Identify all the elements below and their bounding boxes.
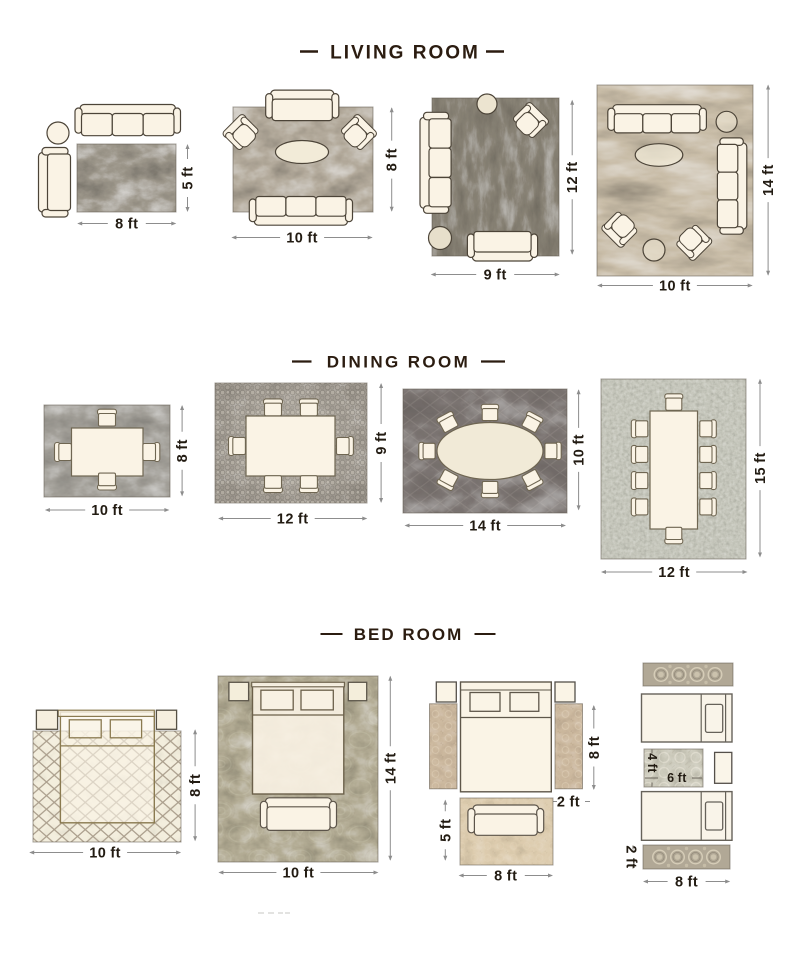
svg-text:14ft: 14ft (469, 519, 501, 535)
svg-text:12ft: 12ft (658, 565, 690, 581)
svg-text:10ft: 10ft (286, 231, 318, 247)
svg-text:8ft: 8ft (188, 774, 204, 797)
svg-text:9ft: 9ft (374, 431, 390, 454)
svg-text:10ft: 10ft (659, 279, 691, 295)
svg-text:12ft: 12ft (565, 161, 581, 193)
svg-text:DINING ROOM: DINING ROOM (327, 353, 471, 372)
svg-text:2ft: 2ft (623, 845, 639, 868)
svg-text:4ft: 4ft (645, 753, 659, 773)
svg-text:8ft: 8ft (175, 439, 191, 462)
svg-text:8ft: 8ft (587, 736, 603, 759)
svg-text:8ft: 8ft (385, 148, 401, 171)
svg-text:12ft: 12ft (277, 512, 309, 528)
svg-text:8ft: 8ft (115, 217, 138, 233)
svg-text:5ft: 5ft (438, 819, 454, 842)
svg-text:2ft: 2ft (557, 795, 580, 811)
svg-text:10ft: 10ft (282, 866, 314, 882)
svg-text:14ft: 14ft (761, 164, 777, 196)
svg-text:14ft: 14ft (383, 752, 399, 784)
svg-text:10ft: 10ft (89, 846, 121, 862)
svg-text:8ft: 8ft (675, 875, 698, 891)
svg-text:9ft: 9ft (484, 268, 507, 284)
svg-text:10ft: 10ft (91, 503, 123, 519)
svg-text:5ft: 5ft (181, 166, 197, 189)
svg-text:8ft: 8ft (494, 869, 517, 885)
svg-text:6ft: 6ft (667, 771, 687, 785)
svg-text:BED ROOM: BED ROOM (354, 625, 464, 644)
svg-text:15ft: 15ft (753, 452, 769, 484)
svg-text:10ft: 10ft (572, 434, 588, 466)
svg-text:LIVING ROOM: LIVING ROOM (330, 42, 480, 63)
